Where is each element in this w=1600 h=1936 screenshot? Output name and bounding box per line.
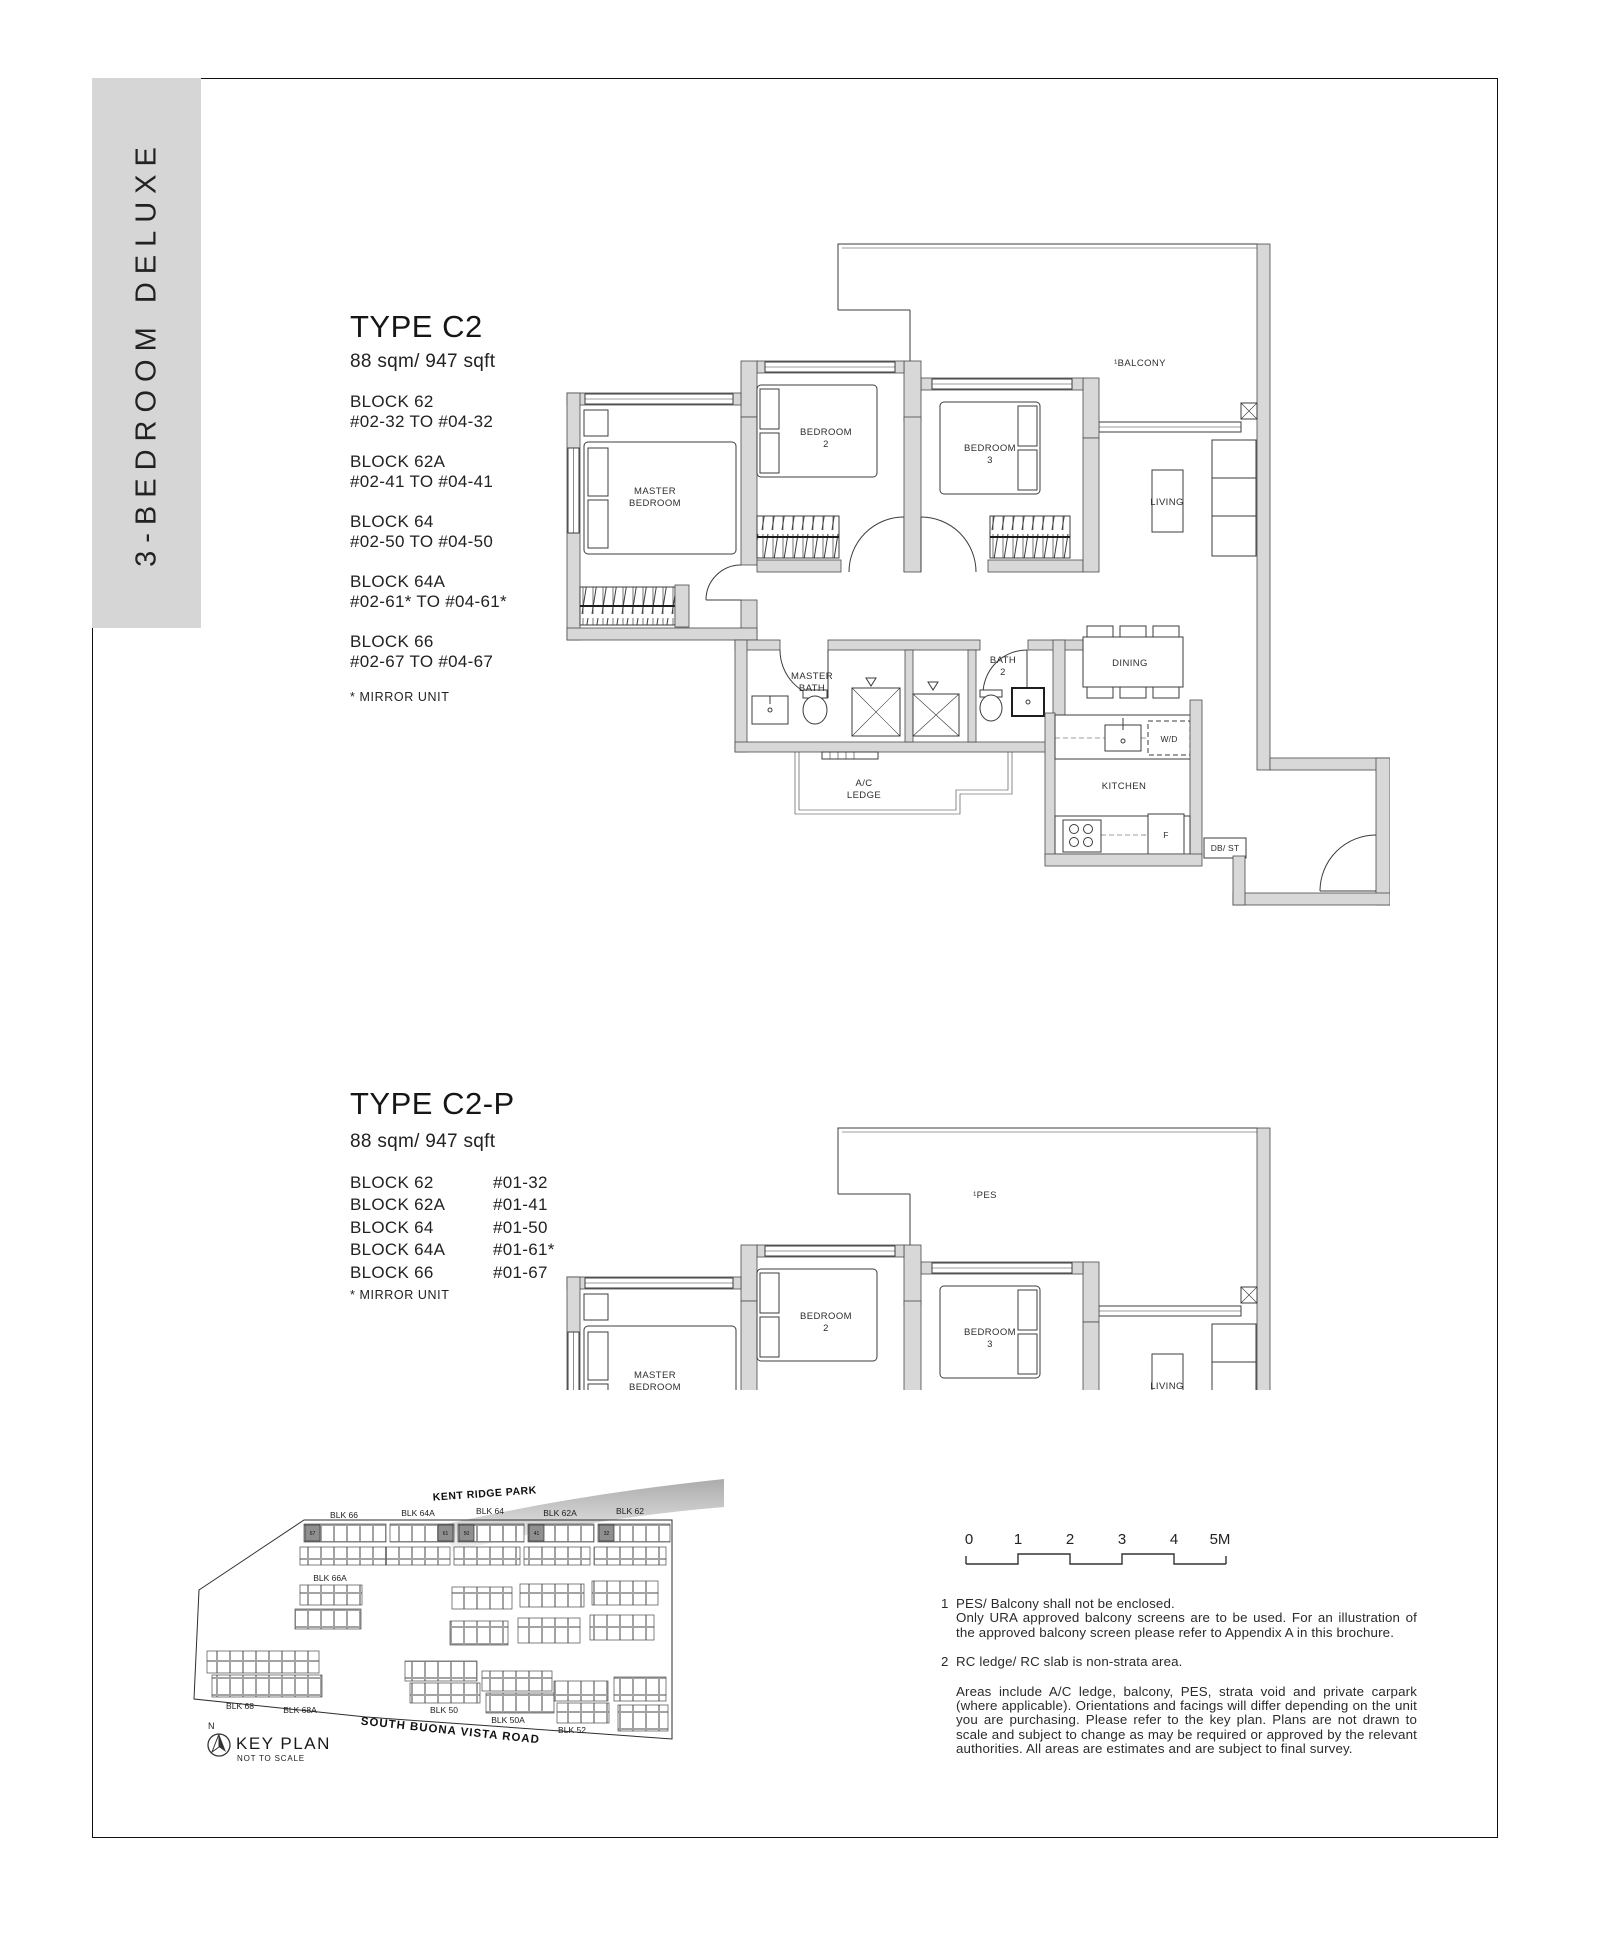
- scale-tick: 4: [1170, 1531, 1178, 1548]
- keyplan-subtitle: NOT TO SCALE: [237, 1754, 305, 1763]
- block-range: #02-50 TO #04-50: [350, 532, 507, 552]
- block-row: BLOCK 62 #01-32: [350, 1172, 555, 1194]
- floorplan-geometry: MASTER BEDROOM BEDROOM 2 BEDROOM 3 LIVIN…: [567, 244, 1390, 905]
- label-fridge: F: [1163, 830, 1168, 840]
- scale-tick: 2: [1066, 1531, 1074, 1548]
- c2p-area: 88 sqm/ 947 sqft: [350, 1131, 495, 1153]
- blk-label: BLK 62: [616, 1506, 644, 1516]
- unit-strips-bottom-middle: [405, 1661, 668, 1731]
- block-entry: BLOCK 64A #02-61* TO #04-61*: [350, 572, 507, 612]
- floorplan-c2: MASTER BEDROOM BEDROOM 2 BEDROOM 3 LIVIN…: [560, 238, 1390, 908]
- block-range: #02-67 TO #04-67: [350, 652, 507, 672]
- floorplan-geometry-reuse: [567, 1128, 1390, 1390]
- scale-tick: 5M: [1210, 1531, 1231, 1548]
- compass-north-label: N: [208, 1721, 215, 1731]
- block-entry: BLOCK 62 #02-32 TO #04-32: [350, 392, 507, 432]
- compass-needle: [219, 1734, 226, 1752]
- c2-title: TYPE C2: [350, 309, 483, 345]
- note-number: 2: [941, 1655, 956, 1669]
- blk-label: BLK 68A: [283, 1705, 317, 1715]
- blk-label: BLK 66: [330, 1510, 358, 1520]
- label-bedroom3-2: 3: [987, 455, 993, 466]
- category-band: 3-BEDROOM DELUXE: [92, 78, 201, 628]
- unit-strips-top: [300, 1524, 670, 1565]
- unit-strips-bottom-left: [207, 1651, 322, 1697]
- block-name: BLOCK 64A: [350, 572, 507, 592]
- block-unit: #01-67: [493, 1262, 548, 1284]
- stack-number: 41: [534, 1531, 540, 1537]
- c2p-title: TYPE C2-P: [350, 1086, 515, 1122]
- block-unit: #01-50: [493, 1217, 548, 1239]
- block-entry: BLOCK 64 #02-50 TO #04-50: [350, 512, 507, 552]
- brochure-page: 3-BEDROOM DELUXE TYPE C2 88 sqm/ 947 sqf…: [0, 0, 1600, 1936]
- label-ac-ledge-2: LEDGE: [847, 790, 881, 801]
- block-name: BLOCK 66: [350, 632, 507, 652]
- stack-number: 67: [310, 1531, 316, 1537]
- label-bedroom3-1: BEDROOM: [964, 443, 1016, 454]
- park-label: KENT RIDGE PARK: [432, 1484, 537, 1503]
- block-row: BLOCK 66 #01-67: [350, 1262, 555, 1284]
- scale-tick: 3: [1118, 1531, 1126, 1548]
- label-master-bath-2: BATH: [799, 683, 825, 694]
- label-master-bedroom-2: BEDROOM: [629, 498, 681, 509]
- block-range: #02-32 TO #04-32: [350, 412, 507, 432]
- block-name: BLOCK 64A: [350, 1239, 493, 1261]
- label-master-bath-1: MASTER: [791, 671, 833, 682]
- blk-label: BLK 64: [476, 1506, 504, 1516]
- label-bedroom2-2: 2: [823, 439, 829, 450]
- blk-label: BLK 68: [226, 1701, 254, 1711]
- block-unit: #01-41: [493, 1194, 548, 1216]
- label-wd: W/D: [1160, 734, 1177, 744]
- keyplan-title: KEY PLAN: [236, 1734, 331, 1753]
- label-dbst: DB/ ST: [1211, 843, 1240, 853]
- notes: 1 PES/ Balcony shall not be enclosed. On…: [941, 1597, 1419, 1772]
- blk-label: BLK 50: [430, 1705, 458, 1715]
- stack-number: 50: [464, 1531, 470, 1537]
- label-bath2-2: 2: [1000, 667, 1006, 678]
- scale-tick: 0: [965, 1531, 973, 1548]
- note-paragraph: Areas include A/C ledge, balcony, PES, s…: [941, 1685, 1419, 1757]
- block-row: BLOCK 64A #01-61*: [350, 1239, 555, 1261]
- label-dining: DINING: [1112, 658, 1148, 669]
- c2-block-list: BLOCK 62 #02-32 TO #04-32 BLOCK 62A #02-…: [350, 392, 507, 692]
- blk-label: BLK 66A: [313, 1573, 347, 1583]
- label-pes: ¹PES: [973, 1190, 997, 1201]
- block-name: BLOCK 62: [350, 392, 507, 412]
- block-range: #02-61* TO #04-61*: [350, 592, 507, 612]
- block-name: BLOCK 62A: [350, 1194, 493, 1216]
- block-name: BLOCK 62: [350, 1172, 493, 1194]
- compass-needle-outline: [212, 1734, 219, 1752]
- scale-bar: 0 1 2 3 4 5M: [965, 1528, 1233, 1580]
- c2p-mirror-note: * MIRROR UNIT: [350, 1288, 449, 1302]
- blk-label: BLK 52: [558, 1725, 586, 1735]
- scale-bar-line: [966, 1554, 1226, 1564]
- note-text: Areas include A/C ledge, balcony, PES, s…: [956, 1685, 1417, 1757]
- block-unit: #01-61*: [493, 1239, 555, 1261]
- c2-area: 88 sqm/ 947 sqft: [350, 351, 495, 373]
- block-name: BLOCK 64: [350, 1217, 493, 1239]
- label-living: LIVING: [1150, 497, 1184, 508]
- key-plan: KENT RIDGE PARK BLK 66 BLK 64A BLK 64 BL…: [152, 1423, 727, 1768]
- block-name: BLOCK 64: [350, 512, 507, 532]
- label-ac-ledge-1: A/C: [855, 778, 872, 789]
- block-row: BLOCK 64 #01-50: [350, 1217, 555, 1239]
- c2p-block-table: BLOCK 62 #01-32 BLOCK 62A #01-41 BLOCK 6…: [350, 1172, 555, 1284]
- note-2: 2 RC ledge/ RC slab is non-strata area.: [941, 1655, 1419, 1669]
- stack-number: 61: [443, 1531, 449, 1537]
- label-master-bedroom-1: MASTER: [634, 486, 676, 497]
- note-text: Only URA approved balcony screens are to…: [956, 1611, 1417, 1640]
- note-number: 1: [941, 1597, 956, 1640]
- blk-label: BLK 50A: [491, 1715, 525, 1725]
- category-label: 3-BEDROOM DELUXE: [130, 139, 163, 567]
- block-name: BLOCK 66: [350, 1262, 493, 1284]
- label-bath2-1: BATH: [990, 655, 1016, 666]
- stack-number: 32: [604, 1531, 610, 1537]
- label-kitchen: KITCHEN: [1102, 781, 1147, 792]
- note-text: RC ledge/ RC slab is non-strata area.: [956, 1655, 1417, 1669]
- c2-mirror-note: * MIRROR UNIT: [350, 690, 449, 704]
- label-bedroom2-1: BEDROOM: [800, 427, 852, 438]
- block-row: BLOCK 62A #01-41: [350, 1194, 555, 1216]
- note-text: PES/ Balcony shall not be enclosed.: [956, 1597, 1417, 1611]
- block-entry: BLOCK 62A #02-41 TO #04-41: [350, 452, 507, 492]
- blk-label: BLK 62A: [543, 1508, 577, 1518]
- block-unit: #01-32: [493, 1172, 548, 1194]
- floorplan-c2p: ¹PES: [560, 1122, 1390, 1390]
- blk-label: BLK 64A: [401, 1508, 435, 1518]
- block-name: BLOCK 62A: [350, 452, 507, 472]
- unit-strips-middle: [450, 1581, 658, 1645]
- block-range: #02-41 TO #04-41: [350, 472, 507, 492]
- label-balcony: ¹BALCONY: [1114, 358, 1166, 369]
- scale-tick: 1: [1014, 1531, 1022, 1548]
- note-1: 1 PES/ Balcony shall not be enclosed. On…: [941, 1597, 1419, 1640]
- block-entry: BLOCK 66 #02-67 TO #04-67: [350, 632, 507, 672]
